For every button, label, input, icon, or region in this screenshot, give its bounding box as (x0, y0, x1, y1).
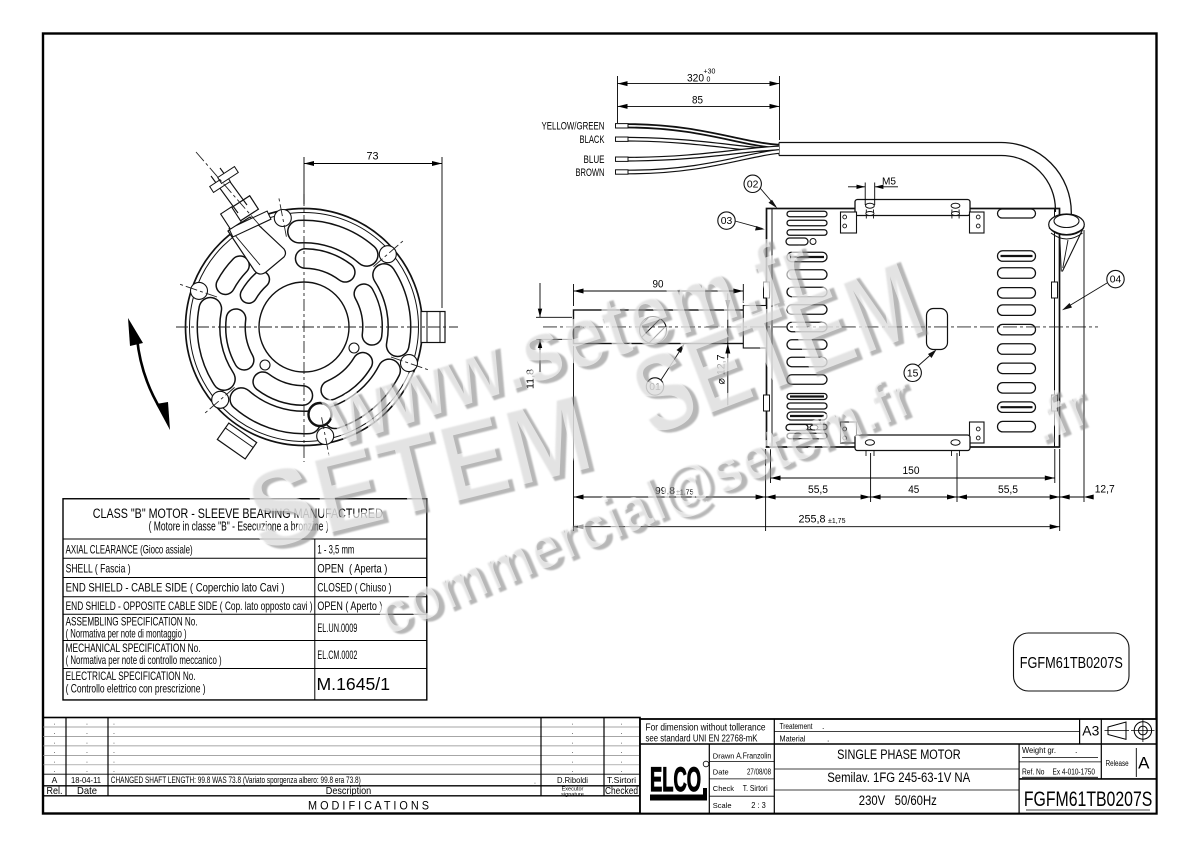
svg-text:Description: Description (326, 785, 372, 797)
svg-text:.: . (621, 757, 623, 764)
svg-text:Semilav. 1FG 245-63-1V NA: Semilav. 1FG 245-63-1V NA (827, 770, 970, 785)
svg-text:0: 0 (707, 77, 711, 84)
svg-text:.: . (54, 729, 56, 736)
svg-text:.: . (572, 748, 574, 755)
svg-text:.: . (621, 720, 623, 727)
svg-text:.: . (113, 757, 115, 764)
svg-text:.: . (572, 757, 574, 764)
svg-text:.: . (86, 748, 88, 755)
svg-text:Ref. No: Ref. No (1022, 767, 1045, 777)
svg-text:.: . (54, 767, 56, 774)
svg-text:M O D I F I C A T I O N S: M O D I F I C A T I O N S (308, 799, 429, 813)
svg-text:EL.UN.0009: EL.UN.0009 (317, 621, 357, 635)
svg-text:.: . (572, 767, 574, 774)
svg-text:END SHIELD - CABLE SIDE ( Cope: END SHIELD - CABLE SIDE ( Coperchio lato… (66, 581, 285, 595)
svg-text:Weight gr.: Weight gr. (1022, 745, 1056, 755)
svg-text:255,8: 255,8 (799, 514, 826, 526)
svg-text:Treatement: Treatement (780, 721, 813, 731)
svg-text:.: . (113, 720, 115, 727)
svg-text:.: . (86, 739, 88, 746)
svg-text:02: 02 (747, 179, 759, 190)
svg-text:.: . (621, 767, 623, 774)
svg-text:230V 50/60Hz: 230V 50/60Hz (859, 793, 937, 808)
svg-text:.: . (86, 720, 88, 727)
svg-text:( Normativa per note di montag: ( Normativa per note di montaggio ) (66, 627, 187, 641)
svg-text:.: . (572, 739, 574, 746)
svg-text:.: . (572, 720, 574, 727)
svg-text:.: . (621, 729, 623, 736)
svg-text:55,5: 55,5 (808, 484, 828, 496)
svg-text:.: . (822, 721, 824, 731)
svg-text:55,5: 55,5 (998, 484, 1018, 496)
svg-text:A3: A3 (1082, 724, 1099, 739)
svg-text:.: . (113, 739, 115, 746)
svg-text:.: . (572, 729, 574, 736)
svg-text:.: . (54, 720, 56, 727)
svg-text:Scale: Scale (713, 801, 732, 810)
svg-text:see standard UNI EN 22768-mK: see standard UNI EN 22768-mK (646, 734, 758, 745)
svg-text:.: . (621, 748, 623, 755)
svg-text:Release: Release (1106, 759, 1129, 768)
svg-text:CHANGED SHAFT LENGTH: 99.8 WAS: CHANGED SHAFT LENGTH: 99.8 WAS 73.8 (Var… (111, 775, 361, 786)
svg-text:Checked: Checked (605, 785, 638, 797)
svg-text:.: . (1075, 745, 1077, 755)
svg-text:A: A (52, 775, 58, 785)
svg-text:Drawn: Drawn (713, 752, 735, 761)
svg-text:D.Riboldi: D.Riboldi (557, 775, 588, 785)
svg-text:Ex 4-010-1750: Ex 4-010-1750 (1053, 767, 1096, 777)
svg-text:.: . (621, 739, 623, 746)
svg-text:For dimension without tolleran: For dimension without tollerance (646, 723, 766, 734)
svg-text:.: . (54, 757, 56, 764)
svg-text:.: . (534, 779, 536, 786)
svg-text:FGFM61TB0207S: FGFM61TB0207S (1020, 655, 1123, 672)
svg-text:FGFM61TB0207S: FGFM61TB0207S (1024, 788, 1153, 811)
svg-text:YELLOW/GREEN: YELLOW/GREEN (542, 121, 605, 133)
svg-text:45: 45 (908, 484, 919, 496)
svg-text:SINGLE PHASE MOTOR: SINGLE PHASE MOTOR (837, 747, 961, 762)
svg-text:EL.CM.0002: EL.CM.0002 (317, 648, 357, 662)
svg-text:( Controllo elettrico con pres: ( Controllo elettrico con prescrizione ) (66, 682, 206, 696)
svg-text:85: 85 (692, 94, 703, 106)
svg-text:AXIAL CLEARANCE (Gioco assiale: AXIAL CLEARANCE (Gioco assiale) (66, 543, 193, 557)
svg-text:END SHIELD - OPPOSITE CABLE SI: END SHIELD - OPPOSITE CABLE SIDE ( Cop. … (66, 599, 313, 613)
svg-text:2 : 3: 2 : 3 (751, 801, 766, 810)
svg-text:Check: Check (713, 784, 735, 793)
svg-text:signature: signature (561, 792, 584, 798)
svg-text:.: . (113, 748, 115, 755)
svg-text:BLUE: BLUE (584, 154, 605, 166)
svg-text:320: 320 (687, 73, 704, 85)
svg-text:73: 73 (367, 151, 379, 163)
svg-text:Rel.: Rel. (47, 785, 63, 797)
svg-text:.: . (113, 729, 115, 736)
svg-text:SHELL ( Fascia ): SHELL ( Fascia ) (66, 562, 131, 576)
svg-text:BROWN: BROWN (576, 167, 605, 179)
svg-text:M5: M5 (882, 176, 896, 188)
svg-text:Date: Date (713, 768, 729, 777)
svg-text:03: 03 (721, 216, 733, 227)
svg-text:( Normativa per note di contro: ( Normativa per note di controllo meccan… (66, 653, 222, 667)
svg-text:.: . (54, 739, 56, 746)
svg-text:.: . (86, 757, 88, 764)
svg-text:Date: Date (77, 785, 97, 797)
svg-text:T.Sirtori: T.Sirtori (607, 775, 636, 785)
svg-text:150: 150 (903, 465, 920, 477)
svg-text:Material: Material (780, 734, 806, 744)
svg-text:.: . (827, 734, 829, 744)
svg-text:.: . (86, 729, 88, 736)
svg-text:18-04-11: 18-04-11 (71, 775, 101, 785)
svg-text:OPEN ( Aperta ): OPEN ( Aperta ) (317, 562, 387, 576)
svg-text:+30: +30 (704, 69, 716, 76)
svg-text:15: 15 (907, 368, 919, 379)
svg-text:BLACK: BLACK (580, 134, 605, 146)
svg-text:A.Franzolin: A.Franzolin (736, 752, 771, 761)
svg-text:.: . (113, 767, 115, 774)
svg-text:ELCO: ELCO (650, 761, 701, 799)
svg-text:12,7: 12,7 (1095, 484, 1115, 496)
svg-text:T. Sirtori: T. Sirtori (743, 784, 768, 793)
svg-text:A: A (1138, 754, 1150, 773)
svg-text:.: . (54, 748, 56, 755)
svg-text:.: . (86, 767, 88, 774)
svg-text:27/08/08: 27/08/08 (747, 768, 771, 777)
svg-text:04: 04 (1110, 275, 1122, 286)
svg-text:M.1645/1: M.1645/1 (317, 674, 391, 694)
svg-text:±1,75: ±1,75 (828, 518, 846, 525)
